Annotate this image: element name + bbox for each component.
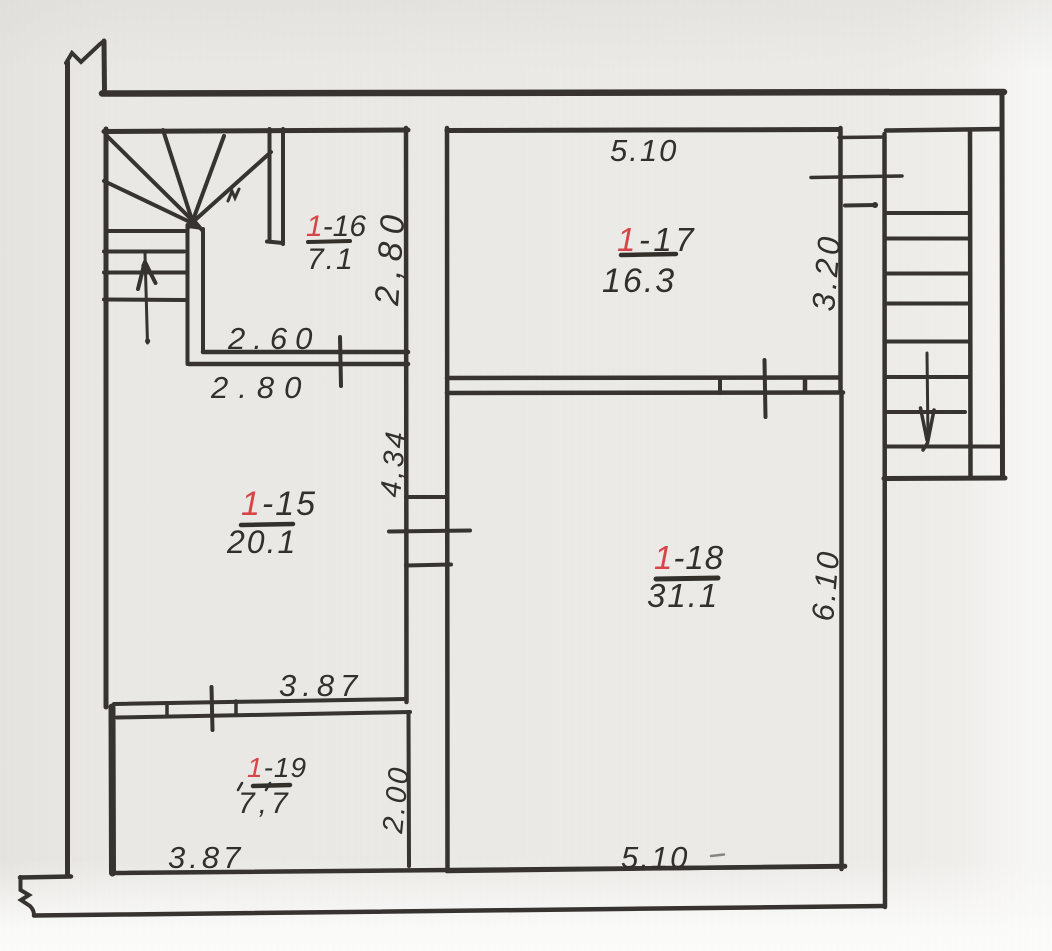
svg-text:2.80: 2.80: [210, 370, 311, 405]
svg-text:1-19: 1-19: [247, 752, 307, 783]
svg-text:2,80: 2,80: [368, 206, 413, 308]
svg-text:7.1: 7.1: [307, 243, 355, 276]
svg-text:7,7: 7,7: [238, 787, 292, 820]
svg-text:3.87: 3.87: [168, 840, 244, 875]
svg-text:1-18: 1-18: [654, 539, 724, 576]
svg-text:1-15: 1-15: [241, 485, 317, 523]
svg-text:5.10: 5.10: [610, 133, 678, 168]
svg-text:2.60: 2.60: [227, 321, 320, 356]
svg-text:1-16: 1-16: [306, 210, 366, 243]
svg-text:3.20: 3.20: [805, 231, 848, 312]
svg-text:16.3: 16.3: [602, 262, 676, 300]
svg-text:31.1: 31.1: [647, 577, 719, 614]
svg-text:5.10: 5.10: [621, 840, 689, 875]
svg-text:3.87: 3.87: [279, 668, 363, 703]
svg-text:4,34: 4,34: [375, 428, 413, 499]
svg-text:20.1: 20.1: [226, 524, 297, 560]
svg-text:6.10: 6.10: [805, 547, 846, 622]
